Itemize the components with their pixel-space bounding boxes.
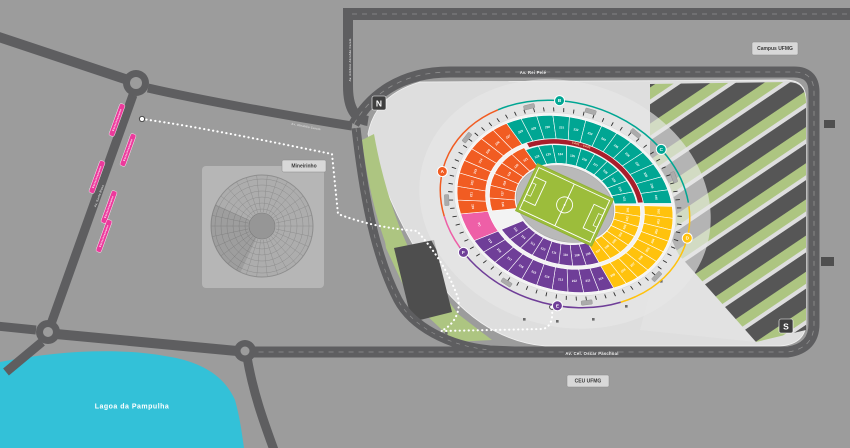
roundabout-southwest-island	[43, 327, 53, 337]
roundabout-south-island	[241, 347, 250, 356]
roundabout-north-island	[130, 77, 142, 89]
stadium-section-number: 116	[501, 202, 505, 208]
badge-campus-label: Campus UFMG	[757, 46, 793, 52]
lake-label: Lagoa da Pampulha	[95, 404, 170, 411]
road-label-abrahao-caram: Av. Antônio Abrahão Caram	[348, 38, 352, 81]
stadium-section-number: 101	[626, 207, 630, 212]
stadium-section-number: 221	[469, 192, 473, 198]
stadium-section-number: 201	[657, 208, 661, 213]
gate-letter: E	[556, 303, 559, 308]
stadium-section-number: 110	[563, 253, 568, 257]
badge-mineirinho[interactable]: Mineirinho	[282, 160, 326, 172]
stadium-section-number: 212	[572, 279, 577, 283]
mineirinho-arena	[202, 166, 324, 288]
stadium-section-number: 202	[656, 218, 661, 224]
gate-letter: F	[462, 250, 465, 255]
stadium-section-number: 117	[500, 191, 505, 197]
stadium-section-number: 213	[558, 277, 564, 282]
stadium-section-number: 240	[654, 195, 659, 201]
stadium-ramp-slab	[444, 195, 449, 206]
path-start-marker	[139, 116, 144, 121]
badge-mineirinho-label: Mineirinho	[291, 164, 316, 170]
marker-north-label: N	[376, 99, 382, 109]
road-west-spur	[0, 326, 36, 330]
mineirinho-core	[249, 213, 275, 239]
stadium-section-number: 220	[471, 204, 476, 210]
marker-south-label: S	[783, 322, 789, 332]
marker-north: N	[372, 96, 386, 110]
badge-campus-ufmg[interactable]: Campus UFMG	[752, 42, 798, 55]
map-wrapper: Lagoa da Pampulha Av. Rei Pelé	[0, 0, 850, 448]
marker-south: S	[779, 319, 793, 333]
road-label-oscar-paschoal: Av. Cel. Oscar Paschoal	[565, 351, 618, 356]
road-label-rei-pele: Av. Rei Pelé	[520, 70, 547, 75]
stadium-section-number: 109	[574, 253, 580, 258]
stadium-section-number: 231	[559, 125, 564, 129]
stadium-section-number: 124	[558, 152, 563, 156]
map-canvas: Lagoa da Pampulha Av. Rei Pelé	[0, 0, 850, 448]
badge-ceu-ufmg[interactable]: CEU UFMG	[567, 375, 609, 387]
badge-ceu-label: CEU UFMG	[575, 379, 602, 385]
stadium-section-number: 230	[545, 125, 551, 130]
